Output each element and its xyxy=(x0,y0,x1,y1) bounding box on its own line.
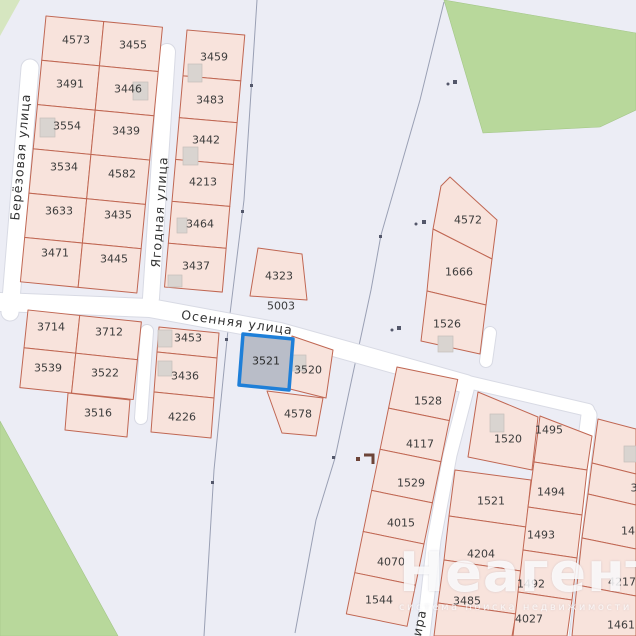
parcel-label-3[interactable]: 3 xyxy=(631,483,636,494)
parcel-label-4117[interactable]: 4117 xyxy=(406,439,434,450)
parcel-label-3459[interactable]: 3459 xyxy=(200,52,228,63)
parcel-label-3516[interactable]: 3516 xyxy=(84,408,112,419)
green-area-bottom-left xyxy=(0,421,118,636)
parcel-label-4573[interactable]: 4573 xyxy=(62,35,90,46)
parcel-label-3445[interactable]: 3445 xyxy=(100,254,128,265)
parcel-label-4015[interactable]: 4015 xyxy=(387,518,415,529)
parcel-label-3539[interactable]: 3539 xyxy=(34,363,62,374)
parcel-label-5003[interactable]: 5003 xyxy=(267,301,295,312)
parcel-label-3446[interactable]: 3446 xyxy=(114,84,142,95)
parcel-label-3554[interactable]: 3554 xyxy=(53,121,81,132)
parcel-label-3483[interactable]: 3483 xyxy=(196,95,224,106)
parcel-label-3439[interactable]: 3439 xyxy=(112,126,140,137)
parcel-label-3521[interactable]: 3521 xyxy=(252,356,280,367)
parcel-label-14[interactable]: 14 xyxy=(621,526,635,537)
parcel-label-4578[interactable]: 4578 xyxy=(284,409,312,420)
parcel-label-3485[interactable]: 3485 xyxy=(453,596,481,607)
parcel-label-3435[interactable]: 3435 xyxy=(104,210,132,221)
parcel-label-4582[interactable]: 4582 xyxy=(108,169,136,180)
parcel-label-4217[interactable]: 4217 xyxy=(608,577,636,588)
parcel-label-3436[interactable]: 3436 xyxy=(171,371,199,382)
cadastral-map[interactable]: 4573345534913446355434393534458236333435… xyxy=(0,0,636,636)
parcel-label-4204[interactable]: 4204 xyxy=(467,549,495,560)
parcel-label-1493[interactable]: 1493 xyxy=(527,530,555,541)
parcel-label-1492[interactable]: 1492 xyxy=(517,579,545,590)
parcel-label-3437[interactable]: 3437 xyxy=(182,261,210,272)
parcel-label-3491[interactable]: 3491 xyxy=(56,79,84,90)
parcel-label-1521[interactable]: 1521 xyxy=(477,496,505,507)
parcel-label-4027[interactable]: 4027 xyxy=(515,614,543,625)
parcel-label-3633[interactable]: 3633 xyxy=(45,206,73,217)
green-area-top-left xyxy=(0,0,20,36)
parcel-label-3442[interactable]: 3442 xyxy=(192,135,220,146)
parcel-label-3464[interactable]: 3464 xyxy=(186,219,214,230)
parcel-label-1544[interactable]: 1544 xyxy=(365,595,393,606)
parcel-label-3712[interactable]: 3712 xyxy=(95,327,123,338)
parcel-label-4226[interactable]: 4226 xyxy=(168,412,196,423)
parcel-label-4572[interactable]: 4572 xyxy=(454,215,482,226)
block-yagodnaya[interactable] xyxy=(165,30,245,292)
parcel-label-1529[interactable]: 1529 xyxy=(397,478,425,489)
parcel-label-1526[interactable]: 1526 xyxy=(433,319,461,330)
parcel-label-3520[interactable]: 3520 xyxy=(294,365,322,376)
parcel-label-3534[interactable]: 3534 xyxy=(50,162,78,173)
parcel-label-3453[interactable]: 3453 xyxy=(174,333,202,344)
parcel-label-1528[interactable]: 1528 xyxy=(414,396,442,407)
parcel-label-1494[interactable]: 1494 xyxy=(537,487,565,498)
parcel-label-4213[interactable]: 4213 xyxy=(189,177,217,188)
parcel-label-1461[interactable]: 1461 xyxy=(607,620,635,631)
parcel-label-1495[interactable]: 1495 xyxy=(535,425,563,436)
green-area-top-right xyxy=(444,0,636,133)
parcel-label-3714[interactable]: 3714 xyxy=(37,322,65,333)
parcel-label-1666[interactable]: 1666 xyxy=(445,267,473,278)
parcel-label-1520[interactable]: 1520 xyxy=(494,434,522,445)
parcel-label-4323[interactable]: 4323 xyxy=(265,271,293,282)
parcel-label-3471[interactable]: 3471 xyxy=(41,248,69,259)
parcel-label-4070[interactable]: 4070 xyxy=(377,557,405,568)
parcel-label-3522[interactable]: 3522 xyxy=(91,368,119,379)
parcel-label-3455[interactable]: 3455 xyxy=(119,40,147,51)
